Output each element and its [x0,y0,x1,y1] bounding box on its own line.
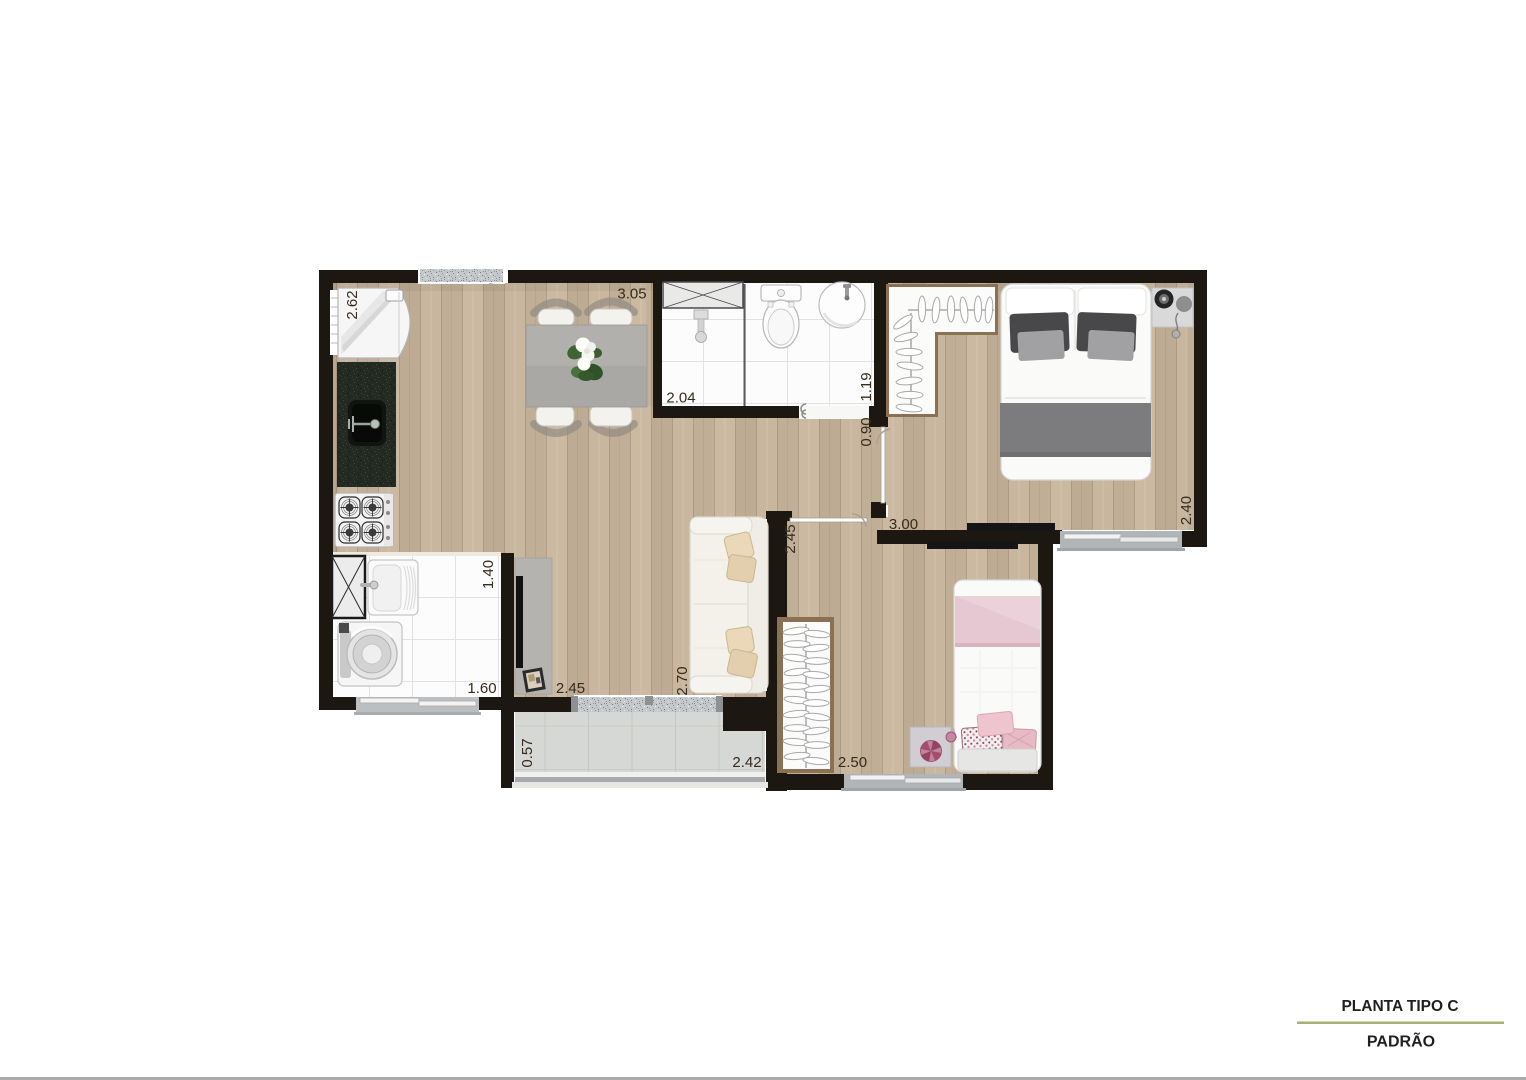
svg-text:2.04: 2.04 [666,390,695,407]
svg-text:2.45: 2.45 [782,524,799,553]
svg-text:1.60: 1.60 [467,680,496,697]
svg-text:2.70: 2.70 [674,666,691,695]
svg-text:1.40: 1.40 [480,560,497,589]
svg-text:0.57: 0.57 [519,738,536,767]
svg-text:2.45: 2.45 [556,680,585,697]
svg-text:2.40: 2.40 [1178,496,1195,525]
svg-text:2.62: 2.62 [344,290,361,319]
svg-text:1.19: 1.19 [858,372,875,401]
svg-text:2.42: 2.42 [732,754,761,771]
svg-text:3.05: 3.05 [617,286,646,303]
svg-text:3.00: 3.00 [889,516,918,533]
svg-text:PADRÃO: PADRÃO [1367,1031,1435,1051]
svg-text:2.50: 2.50 [838,754,867,771]
svg-text:PLANTA TIPO C: PLANTA TIPO C [1341,998,1458,1015]
svg-text:0.90: 0.90 [858,417,875,446]
